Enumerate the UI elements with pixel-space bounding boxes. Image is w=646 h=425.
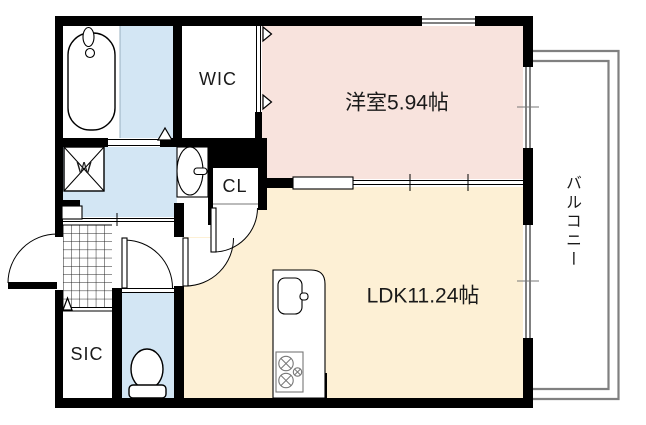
entrance-tile-grid <box>63 225 112 307</box>
kitchen-group <box>273 270 325 398</box>
kitchen-sink <box>278 278 302 314</box>
wall-bottom <box>55 398 533 408</box>
toilet-threshold <box>122 288 174 293</box>
ldk-door-leaf <box>183 238 188 286</box>
western-room-label: 洋室5.94帖 <box>345 93 449 114</box>
toilet-tank <box>129 385 166 398</box>
wall-toilet-right <box>174 286 184 398</box>
bathtub-faucet <box>83 28 94 47</box>
window-top-glass <box>422 16 475 26</box>
ldk-label: LDK11.24帖 <box>367 286 480 307</box>
wall-hall-ldk-upper <box>174 203 184 237</box>
bathtub <box>68 33 115 130</box>
closet-label: CL <box>222 177 247 195</box>
bathroom-wet-area-floor <box>120 26 173 138</box>
bathtub-drain <box>86 49 95 58</box>
entrance-door-arc <box>8 234 57 283</box>
wic-label: WIC <box>199 70 237 88</box>
sliding-door-panel <box>293 177 353 189</box>
balcony-label: バルコニー <box>563 175 579 270</box>
wall-closet-right <box>258 168 267 210</box>
washbasin-faucet <box>194 168 207 175</box>
floorplan: 洋室5.94帖 LDK11.24帖 WIC CL SIC W バルコニー <box>0 0 646 425</box>
toilet-door-leaf <box>122 238 127 288</box>
washroom-door-panel <box>62 206 82 219</box>
washing-machine-label: W <box>76 161 91 177</box>
wall-toilet-left <box>112 288 122 398</box>
entrance-door <box>8 234 57 289</box>
closet-door-leaf <box>211 208 216 252</box>
entrance-door-leaf <box>8 282 57 289</box>
sic-label: SIC <box>70 345 103 363</box>
wall-wic-left <box>173 26 182 138</box>
window-top <box>422 16 475 26</box>
bathroom-door-opening <box>108 138 160 147</box>
toilet-bowl <box>131 349 163 389</box>
wall-above-closet <box>208 138 267 168</box>
washbasin-group <box>177 147 208 197</box>
bathtub-group <box>68 28 115 131</box>
wall-western-room-bottom <box>262 178 293 188</box>
kitchen-faucet <box>300 293 308 300</box>
